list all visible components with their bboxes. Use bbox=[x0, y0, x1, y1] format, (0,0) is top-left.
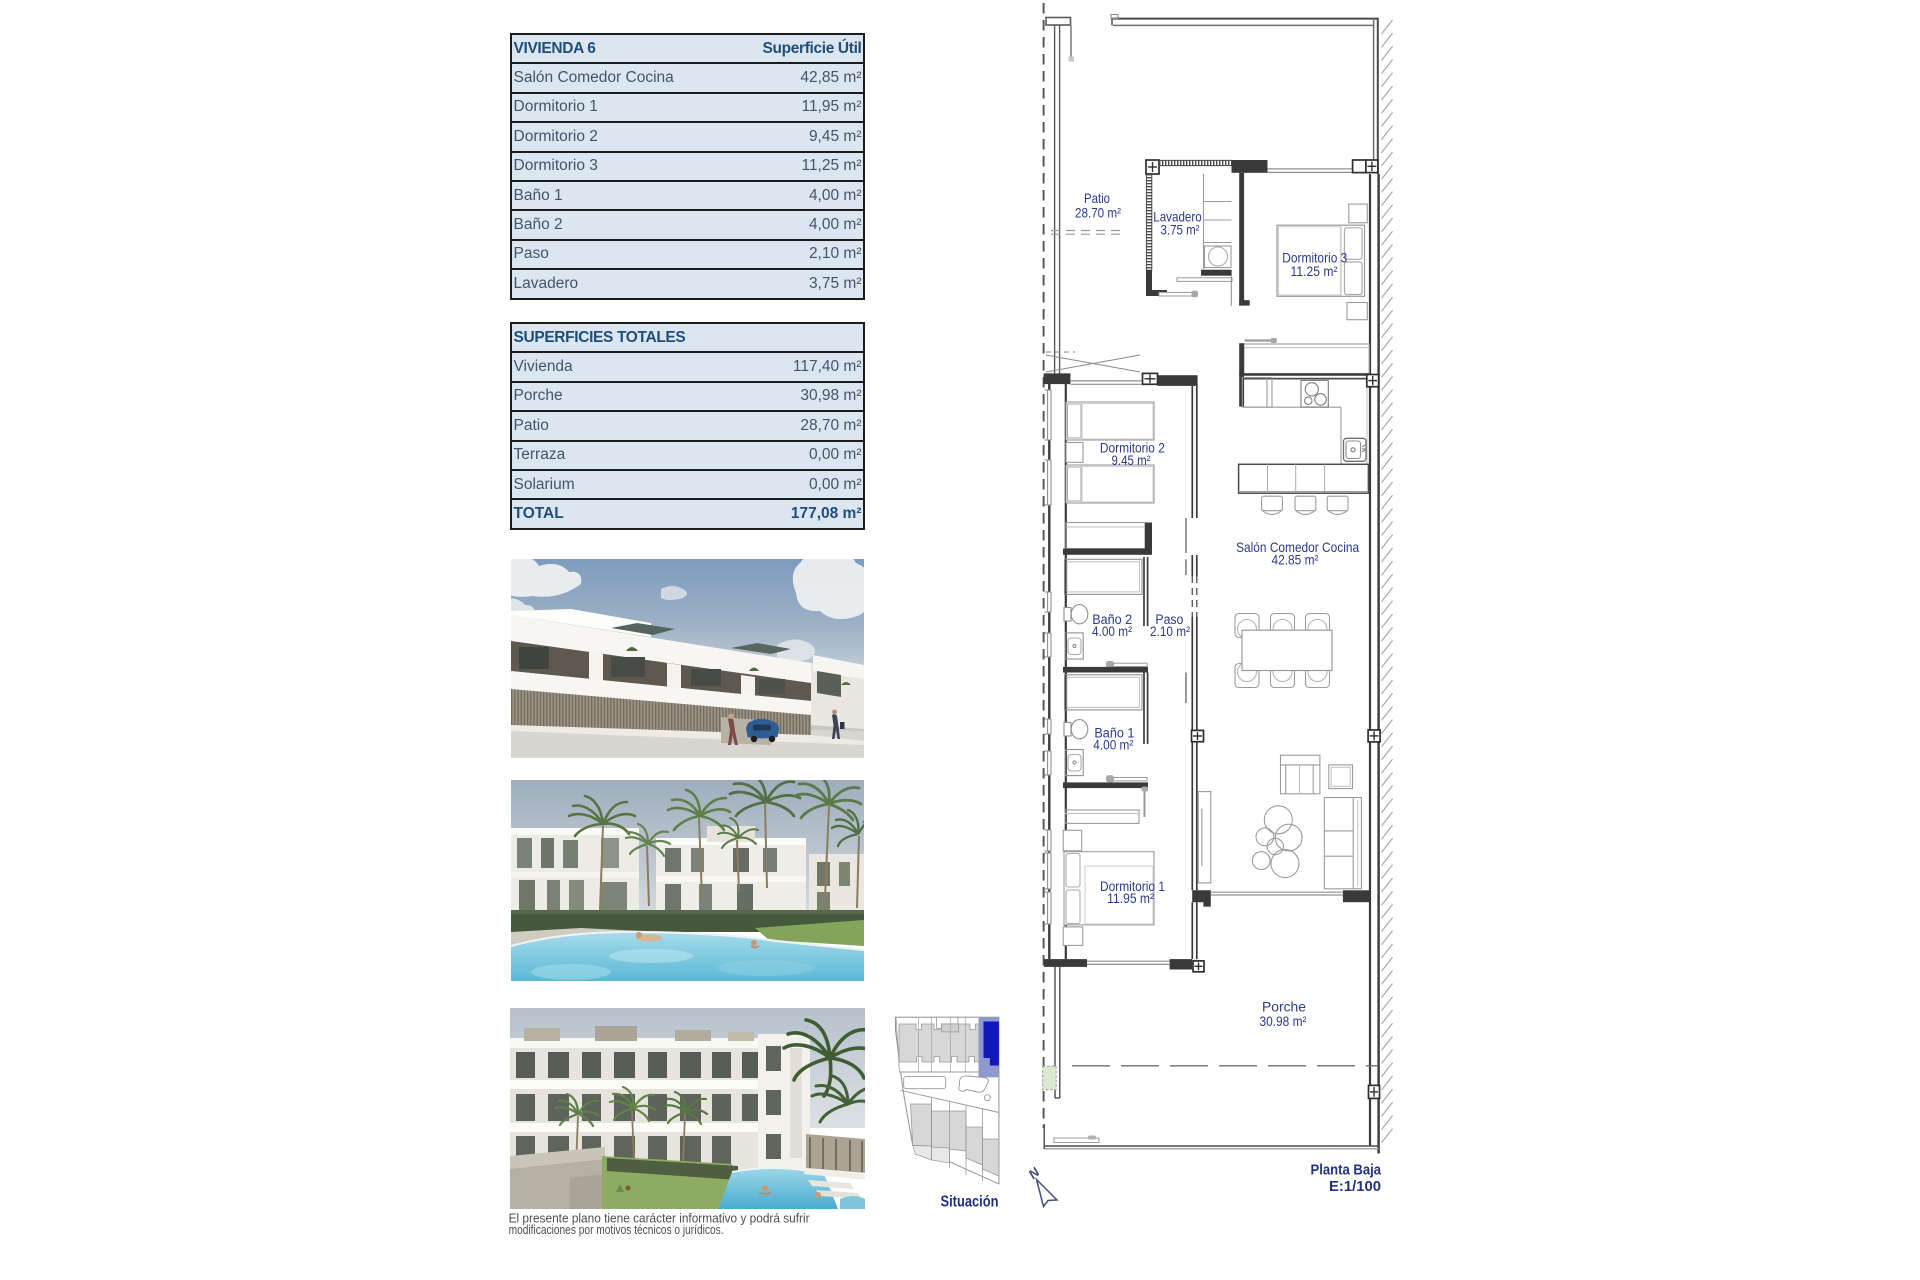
svg-text:11.25 m²: 11.25 m² bbox=[1291, 263, 1338, 279]
svg-text:E:1/100: E:1/100 bbox=[1329, 1179, 1381, 1195]
svg-text:Planta Baja: Planta Baja bbox=[1311, 1163, 1382, 1179]
svg-text:2.10 m²: 2.10 m² bbox=[1150, 624, 1190, 639]
svg-text:modificaciones por motivos téc: modificaciones por motivos técnicos o ju… bbox=[509, 1223, 724, 1237]
svg-text:30.98 m²: 30.98 m² bbox=[1260, 1013, 1307, 1029]
svg-text:28.70 m²: 28.70 m² bbox=[1075, 205, 1121, 221]
svg-text:N: N bbox=[1025, 1164, 1042, 1182]
svg-text:Situación: Situación bbox=[941, 1194, 999, 1211]
svg-text:42.85 m²: 42.85 m² bbox=[1272, 552, 1319, 568]
svg-text:9.45 m²: 9.45 m² bbox=[1112, 452, 1151, 468]
svg-text:4.00 m²: 4.00 m² bbox=[1093, 738, 1133, 753]
svg-text:3.75 m²: 3.75 m² bbox=[1161, 222, 1200, 238]
svg-text:11.95 m²: 11.95 m² bbox=[1107, 890, 1154, 906]
svg-text:4.00 m²: 4.00 m² bbox=[1092, 624, 1132, 639]
